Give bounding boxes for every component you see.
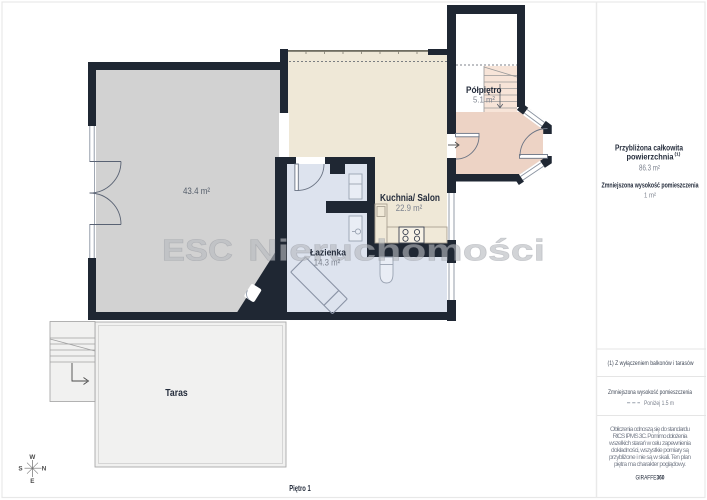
svg-text:22.9 m²: 22.9 m² [396,203,423,214]
svg-text:RICS IPMS 3C. Pomimo dołożenia: RICS IPMS 3C. Pomimo dołożenia [613,433,688,440]
svg-text:Przybliżona całkowita: Przybliżona całkowita [615,144,683,153]
svg-text:piętra ma charakter poglądowy.: piętra ma charakter poglądowy. [614,461,686,468]
svg-text:(1) Z wyłączeniem balkonów i t: (1) Z wyłączeniem balkonów i tarasów [608,360,694,367]
svg-text:Półpiętro: Półpiętro [466,85,502,95]
svg-text:ESC: ESC [162,233,233,268]
svg-text:Zmniejszona wysokość pomieszcz: Zmniejszona wysokość pomieszczenia [608,389,692,396]
svg-text:E: E [30,478,34,485]
svg-text:Piętro 1: Piętro 1 [289,483,311,493]
svg-text:GIRAFFE360: GIRAFFE360 [636,475,665,482]
svg-text:W: W [29,454,35,461]
svg-text:Obliczenia odnoszą się do stan: Obliczenia odnoszą się do standardu [610,426,690,433]
svg-text:S: S [18,465,22,472]
svg-text:5.1 m²: 5.1 m² [473,95,495,105]
svg-text:przybliżone i nie są w skali.: przybliżone i nie są w skali. Ten plan [609,454,691,461]
svg-text:86.3 m²: 86.3 m² [639,164,660,173]
svg-text:1 m²: 1 m² [644,191,656,200]
svg-text:43.4 m²: 43.4 m² [183,186,210,197]
svg-text:(1): (1) [675,152,681,158]
svg-text:powierzchnia: powierzchnia [627,153,674,162]
svg-text:dokładności, wszystkie pomiary: dokładności, wszystkie pomiary są [611,447,689,454]
svg-text:Nieruchomości: Nieruchomości [248,233,545,268]
svg-text:Taras: Taras [165,387,188,399]
svg-text:Poniżej 1.5 m: Poniżej 1.5 m [644,400,674,407]
svg-text:Zmniejszona wysokość pomieszcz: Zmniejszona wysokość pomieszczenia [602,181,700,190]
svg-text:wszelkich starań w celu zapewn: wszelkich starań w celu zapewnienia [608,440,691,447]
svg-text:14.3 m²: 14.3 m² [314,258,341,269]
svg-text:N: N [42,465,47,472]
